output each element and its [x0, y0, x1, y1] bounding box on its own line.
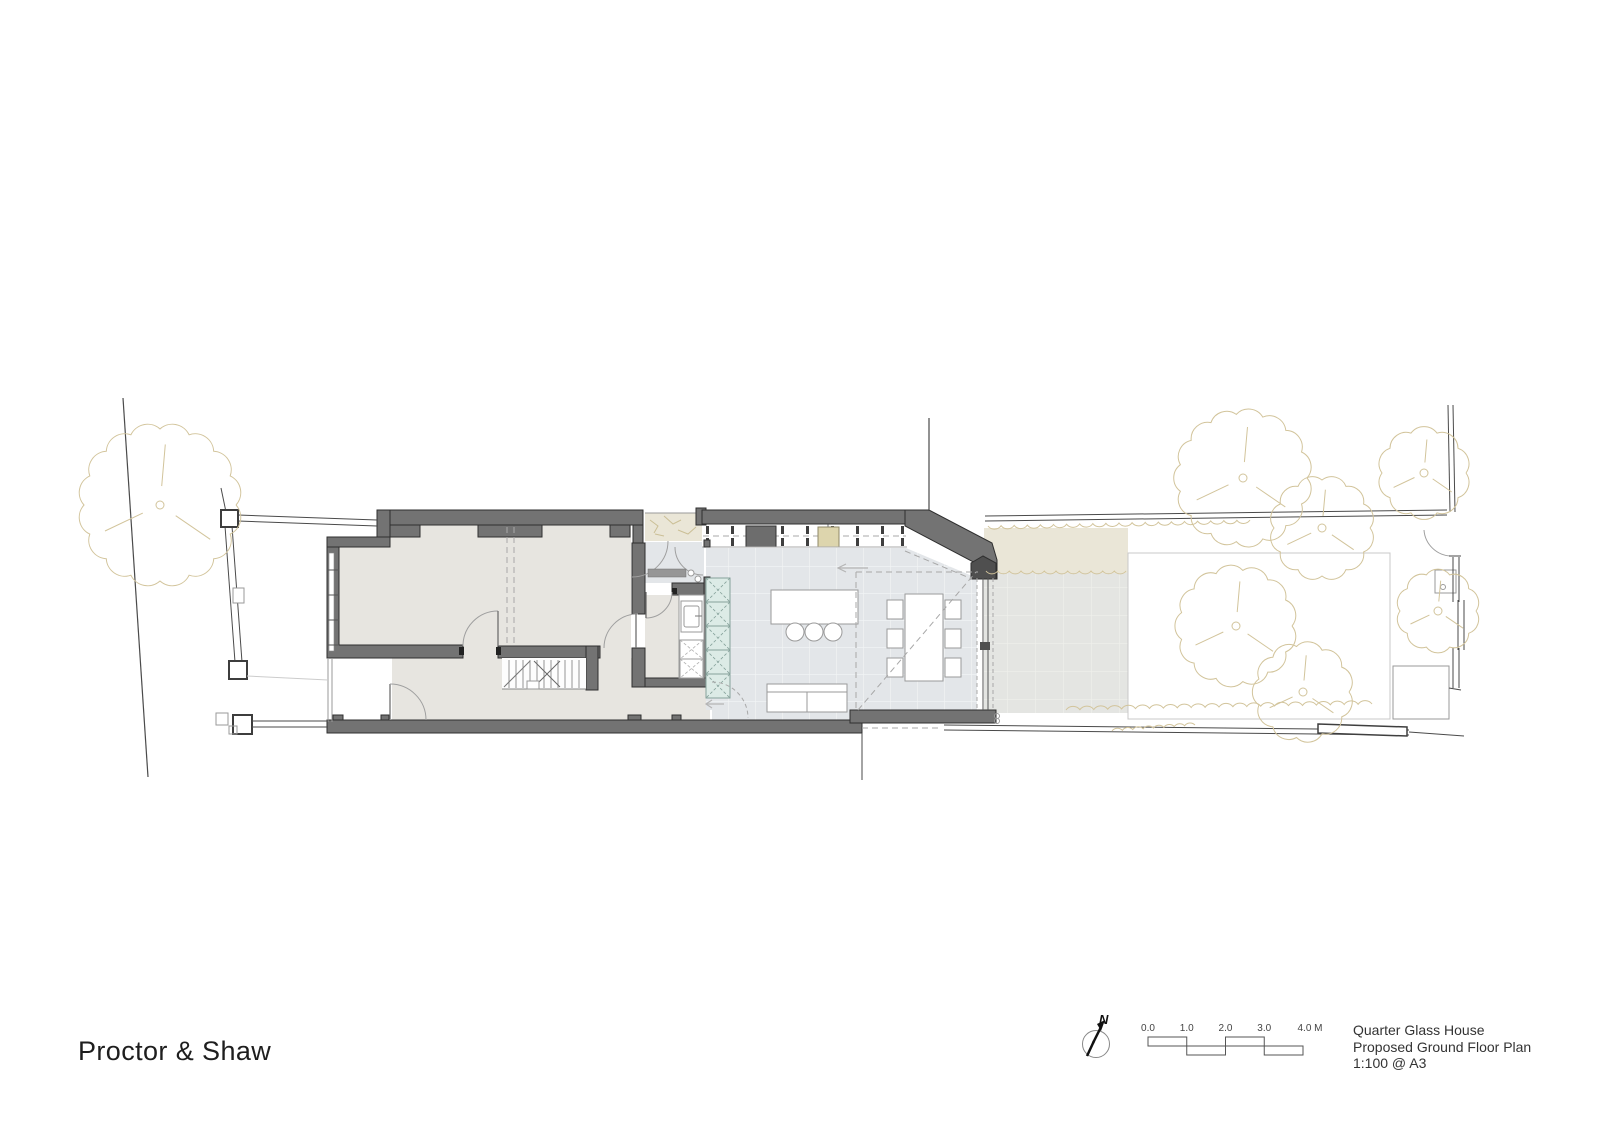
drawing-scale: 1:100 @ A3: [1353, 1055, 1531, 1072]
scale-bar: 0.0 1.0 2.0 3.0 4.0 M: [1141, 1023, 1322, 1055]
kitchen-island: [771, 590, 858, 624]
hall-partition-wall: [327, 645, 463, 658]
project-name: Quarter Glass House: [1353, 1022, 1531, 1039]
reception-rooms-floor: [337, 547, 631, 658]
scale-label: 1.0: [1180, 1023, 1194, 1034]
stool: [805, 623, 823, 641]
dining-chair: [887, 600, 903, 619]
garden-store-detail: [1441, 585, 1446, 590]
stair-newel: [527, 681, 539, 689]
fence-post: [229, 661, 247, 679]
north-label: N: [1099, 1012, 1109, 1027]
chimney-pier: [388, 525, 420, 537]
rooflight-vent: [818, 527, 839, 547]
site-boundary-line: [123, 398, 148, 777]
floor-plan-canvas: 0.0 1.0 2.0 3.0 4.0 M N: [0, 0, 1600, 1131]
scale-label: 3.0: [1257, 1023, 1271, 1034]
chimney-pier: [478, 525, 542, 537]
scale-label: 4.0 M: [1297, 1023, 1322, 1034]
title-block: Quarter Glass House Proposed Ground Floo…: [1353, 1022, 1531, 1072]
party-wall-kitchen: [702, 510, 910, 524]
fence-panel: [1318, 724, 1407, 736]
drawing-title: Proposed Ground Floor Plan: [1353, 1039, 1531, 1056]
rear-room-east-wall: [632, 543, 645, 614]
staircase: [502, 658, 586, 689]
stair-wall: [586, 646, 598, 690]
studio-logo: Proctor & Shaw: [78, 1036, 271, 1067]
dining-chair: [945, 600, 961, 619]
basin: [688, 570, 694, 576]
fence-post: [221, 510, 238, 527]
garden-shed: [1393, 666, 1449, 719]
dining-chair: [945, 629, 961, 648]
basin: [695, 576, 701, 582]
gate-post: [233, 715, 252, 734]
stair-wall: [498, 646, 600, 658]
gate-swing: [1424, 530, 1451, 556]
utility-south-wall: [645, 678, 710, 687]
scale-label: 0.0: [1141, 1023, 1155, 1034]
chimney-pier: [610, 525, 630, 537]
lobby-bench: [648, 569, 686, 577]
rear-garden: [984, 528, 1456, 719]
tree-icon: [79, 424, 241, 586]
tree-icon: [1379, 427, 1469, 520]
dining-chair: [945, 658, 961, 677]
extension-south-wall: [850, 710, 996, 723]
rooflight-dark: [746, 526, 776, 547]
side-courtyard: [645, 513, 702, 541]
dining-chair: [887, 629, 903, 648]
bay-window-glazing: [329, 553, 334, 651]
stool: [824, 623, 842, 641]
drawing-sheet: 0.0 1.0 2.0 3.0 4.0 M N Proctor & Shaw Q…: [0, 0, 1600, 1131]
glazing-stile: [980, 642, 990, 650]
scale-label: 2.0: [1219, 1023, 1233, 1034]
patio-grid: [984, 573, 1128, 713]
stool: [786, 623, 804, 641]
tree-icon: [1174, 409, 1311, 547]
rear-room-east-wall: [632, 648, 645, 687]
dining-table: [905, 594, 943, 681]
shrub-row: [988, 520, 1250, 529]
kitchen-units: [706, 578, 730, 698]
tree-icon: [1397, 569, 1478, 653]
north-arrow: N: [1083, 1012, 1110, 1058]
interior-floors: [337, 525, 985, 725]
south-wall: [327, 720, 862, 733]
planting-bed: [984, 528, 1128, 573]
bay-window-wall: [327, 537, 390, 547]
party-wall-front: [377, 510, 643, 525]
